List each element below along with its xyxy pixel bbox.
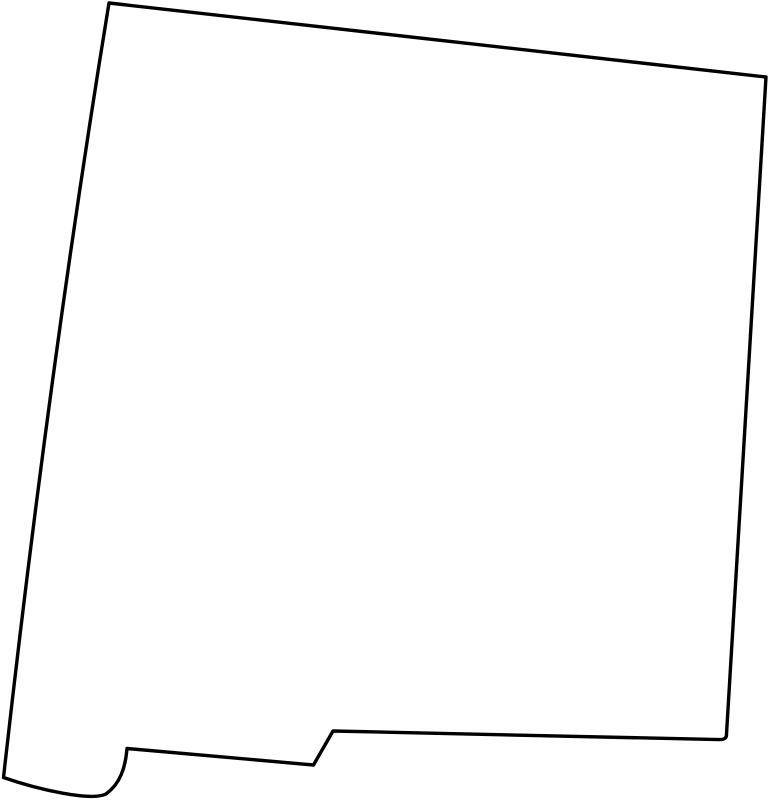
map-canvas bbox=[0, 0, 769, 800]
state-border-path bbox=[4, 3, 767, 796]
new-mexico-outline-map bbox=[0, 0, 769, 800]
